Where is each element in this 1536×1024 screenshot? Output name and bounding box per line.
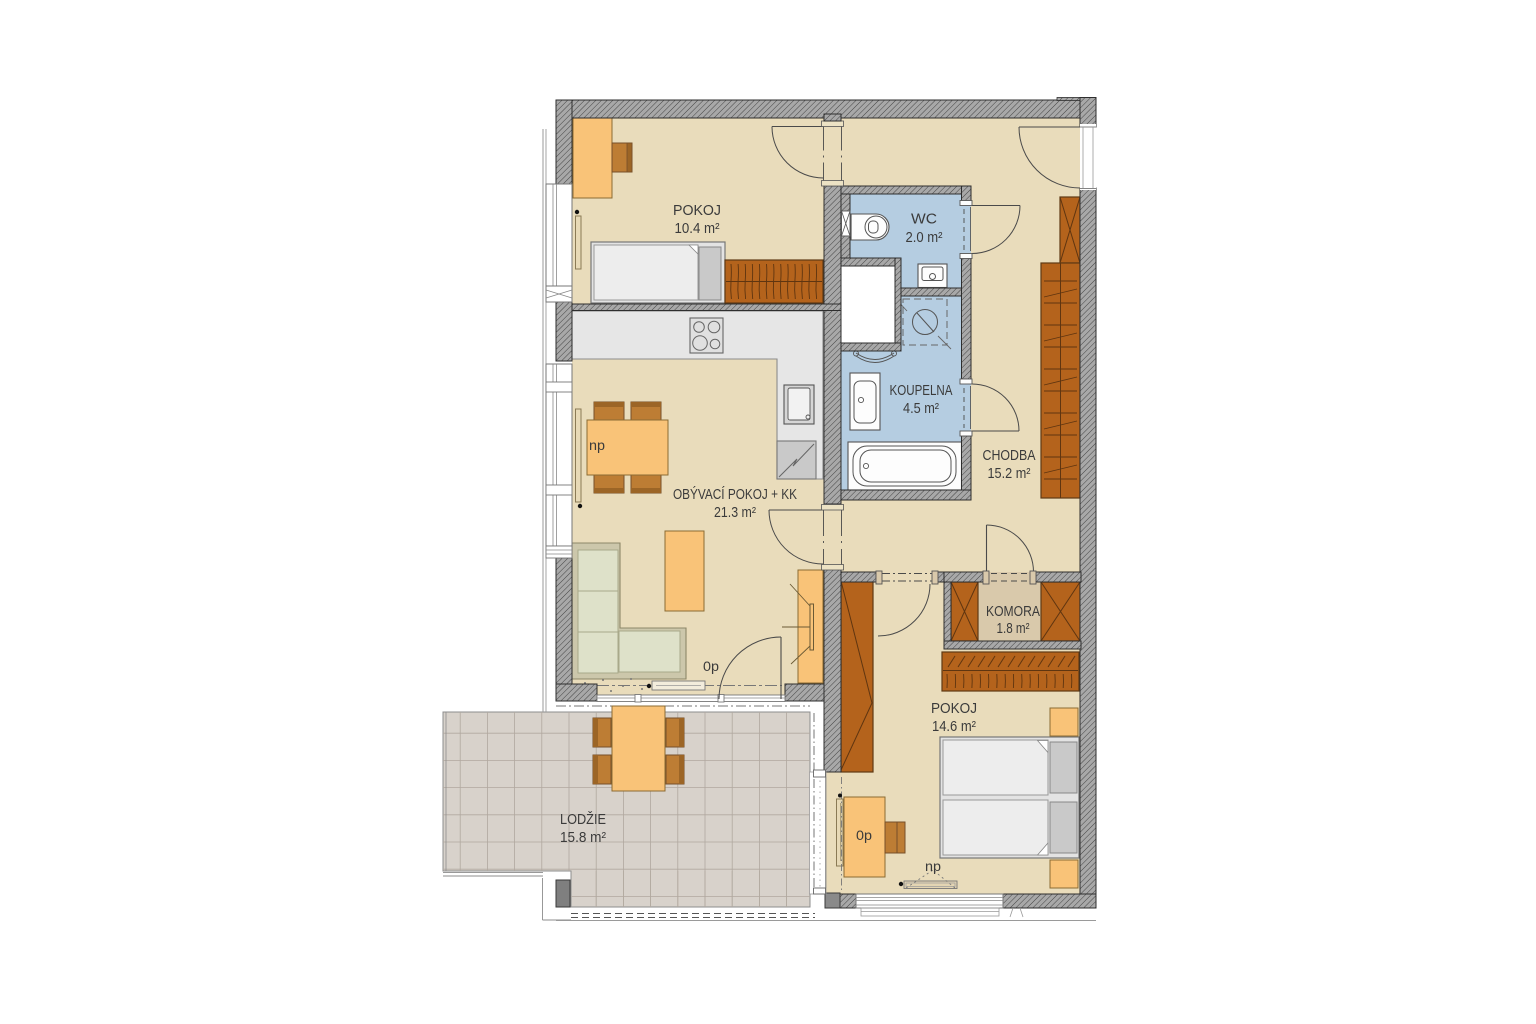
svg-text:10.4 m²: 10.4 m² [675, 221, 720, 237]
svg-text:21.3 m²: 21.3 m² [714, 505, 756, 521]
svg-text:LODŽIE: LODŽIE [560, 811, 606, 828]
svg-text:0p: 0p [856, 828, 872, 843]
svg-text:0p: 0p [703, 659, 719, 674]
svg-text:1.8 m²: 1.8 m² [997, 621, 1030, 637]
svg-text:15.8 m²: 15.8 m² [560, 830, 606, 846]
svg-text:KOUPELNA: KOUPELNA [890, 383, 953, 399]
svg-text:KOMORA: KOMORA [986, 604, 1040, 620]
svg-text:2.0 m²: 2.0 m² [906, 230, 943, 246]
svg-text:POKOJ: POKOJ [673, 203, 721, 219]
svg-text:4.5 m²: 4.5 m² [903, 401, 939, 417]
svg-text:POKOJ: POKOJ [931, 701, 977, 717]
svg-text:15.2 m²: 15.2 m² [988, 466, 1031, 482]
svg-text:np: np [589, 438, 605, 453]
svg-text:np: np [925, 859, 941, 874]
svg-text:CHODBA: CHODBA [983, 448, 1036, 464]
svg-text:14.6 m²: 14.6 m² [932, 719, 976, 735]
svg-text:OBÝVACÍ POKOJ + KK: OBÝVACÍ POKOJ + KK [673, 486, 797, 503]
svg-text:WC: WC [911, 212, 937, 228]
